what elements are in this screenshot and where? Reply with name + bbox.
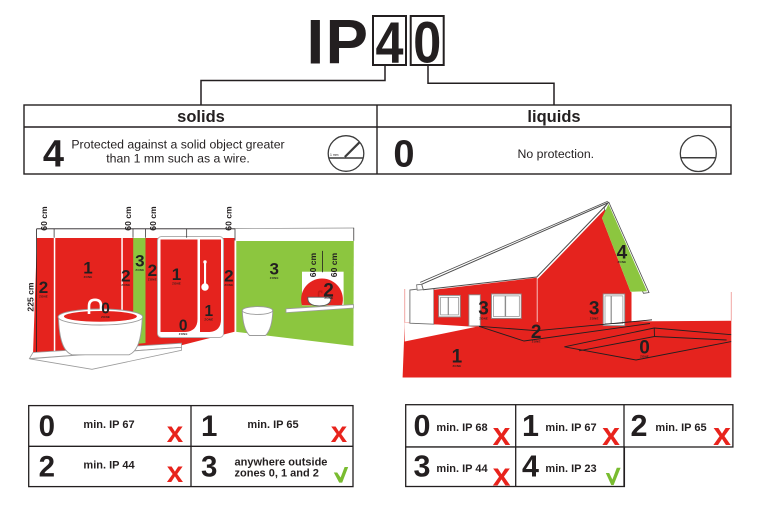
- svg-text:ZONE: ZONE: [101, 315, 110, 319]
- svg-text:60 cm: 60 cm: [224, 206, 234, 231]
- svg-text:ZONE: ZONE: [179, 332, 188, 336]
- svg-text:225 cm: 225 cm: [25, 282, 35, 312]
- svg-text:min. IP 44: min. IP 44: [83, 460, 135, 472]
- svg-text:ZONE: ZONE: [135, 268, 144, 272]
- svg-text:ZONE: ZONE: [224, 283, 233, 287]
- svg-text:min. IP 67: min. IP 67: [83, 419, 134, 431]
- svg-text:4: 4: [376, 11, 404, 76]
- svg-text:x: x: [713, 416, 731, 452]
- svg-text:60 cm: 60 cm: [123, 206, 133, 231]
- svg-text:4: 4: [522, 450, 539, 484]
- svg-text:0: 0: [39, 410, 55, 443]
- svg-text:ZONE: ZONE: [479, 316, 488, 320]
- svg-text:3: 3: [414, 450, 431, 484]
- svg-text:60 cm: 60 cm: [148, 206, 158, 231]
- svg-text:min. IP 68: min. IP 68: [436, 422, 487, 434]
- svg-text:IP: IP: [307, 8, 370, 78]
- svg-text:min. IP 23: min. IP 23: [545, 463, 596, 475]
- svg-text:ZONE: ZONE: [121, 283, 130, 287]
- svg-text:ZONE: ZONE: [270, 276, 279, 280]
- svg-text:liquids: liquids: [527, 108, 580, 126]
- svg-text:ZONE: ZONE: [148, 278, 157, 282]
- svg-text:60 cm: 60 cm: [308, 252, 318, 277]
- svg-text:ZONE: ZONE: [204, 318, 213, 322]
- svg-text:ZONE: ZONE: [324, 296, 333, 300]
- svg-text:2: 2: [631, 409, 648, 443]
- svg-text:1: 1: [522, 409, 539, 443]
- svg-text:x: x: [493, 457, 511, 493]
- svg-text:min. IP 44: min. IP 44: [436, 463, 488, 475]
- svg-text:2: 2: [39, 451, 55, 484]
- svg-text:x: x: [602, 416, 620, 452]
- svg-text:min. IP 65: min. IP 65: [655, 422, 706, 434]
- svg-text:0: 0: [413, 11, 441, 76]
- svg-text:4: 4: [43, 134, 64, 176]
- svg-text:x: x: [167, 416, 184, 449]
- svg-text:0: 0: [393, 134, 414, 176]
- svg-text:min. IP 67: min. IP 67: [545, 422, 596, 434]
- svg-text:ZONE: ZONE: [39, 295, 48, 299]
- svg-text:ZONE: ZONE: [640, 355, 649, 359]
- svg-text:ZONE: ZONE: [172, 282, 181, 286]
- svg-text:No protection.: No protection.: [518, 147, 595, 161]
- svg-text:ZONE: ZONE: [617, 260, 626, 264]
- svg-text:x: x: [167, 456, 184, 489]
- svg-text:x: x: [493, 416, 511, 452]
- svg-text:min. IP 65: min. IP 65: [247, 419, 298, 431]
- svg-text:ZONE: ZONE: [590, 316, 599, 320]
- svg-text:3: 3: [201, 451, 217, 484]
- svg-text:ZONE: ZONE: [84, 275, 93, 279]
- svg-text:x: x: [331, 416, 348, 449]
- svg-text:60 cm: 60 cm: [329, 252, 339, 277]
- svg-text:solids: solids: [177, 108, 225, 126]
- svg-text:1: 1: [201, 410, 217, 443]
- svg-text:1 mm: 1 mm: [330, 153, 339, 157]
- svg-text:ZONE: ZONE: [452, 364, 461, 368]
- svg-text:60 cm: 60 cm: [39, 206, 49, 231]
- svg-text:Protected against a solid obje: Protected against a solid object greater: [71, 138, 284, 152]
- svg-text:than 1 mm such as a wire.: than 1 mm such as a wire.: [106, 152, 250, 166]
- svg-text:zones 0, 1 and 2: zones 0, 1 and 2: [235, 467, 319, 479]
- svg-text:ZONE: ZONE: [532, 339, 541, 343]
- svg-text:0: 0: [414, 409, 431, 443]
